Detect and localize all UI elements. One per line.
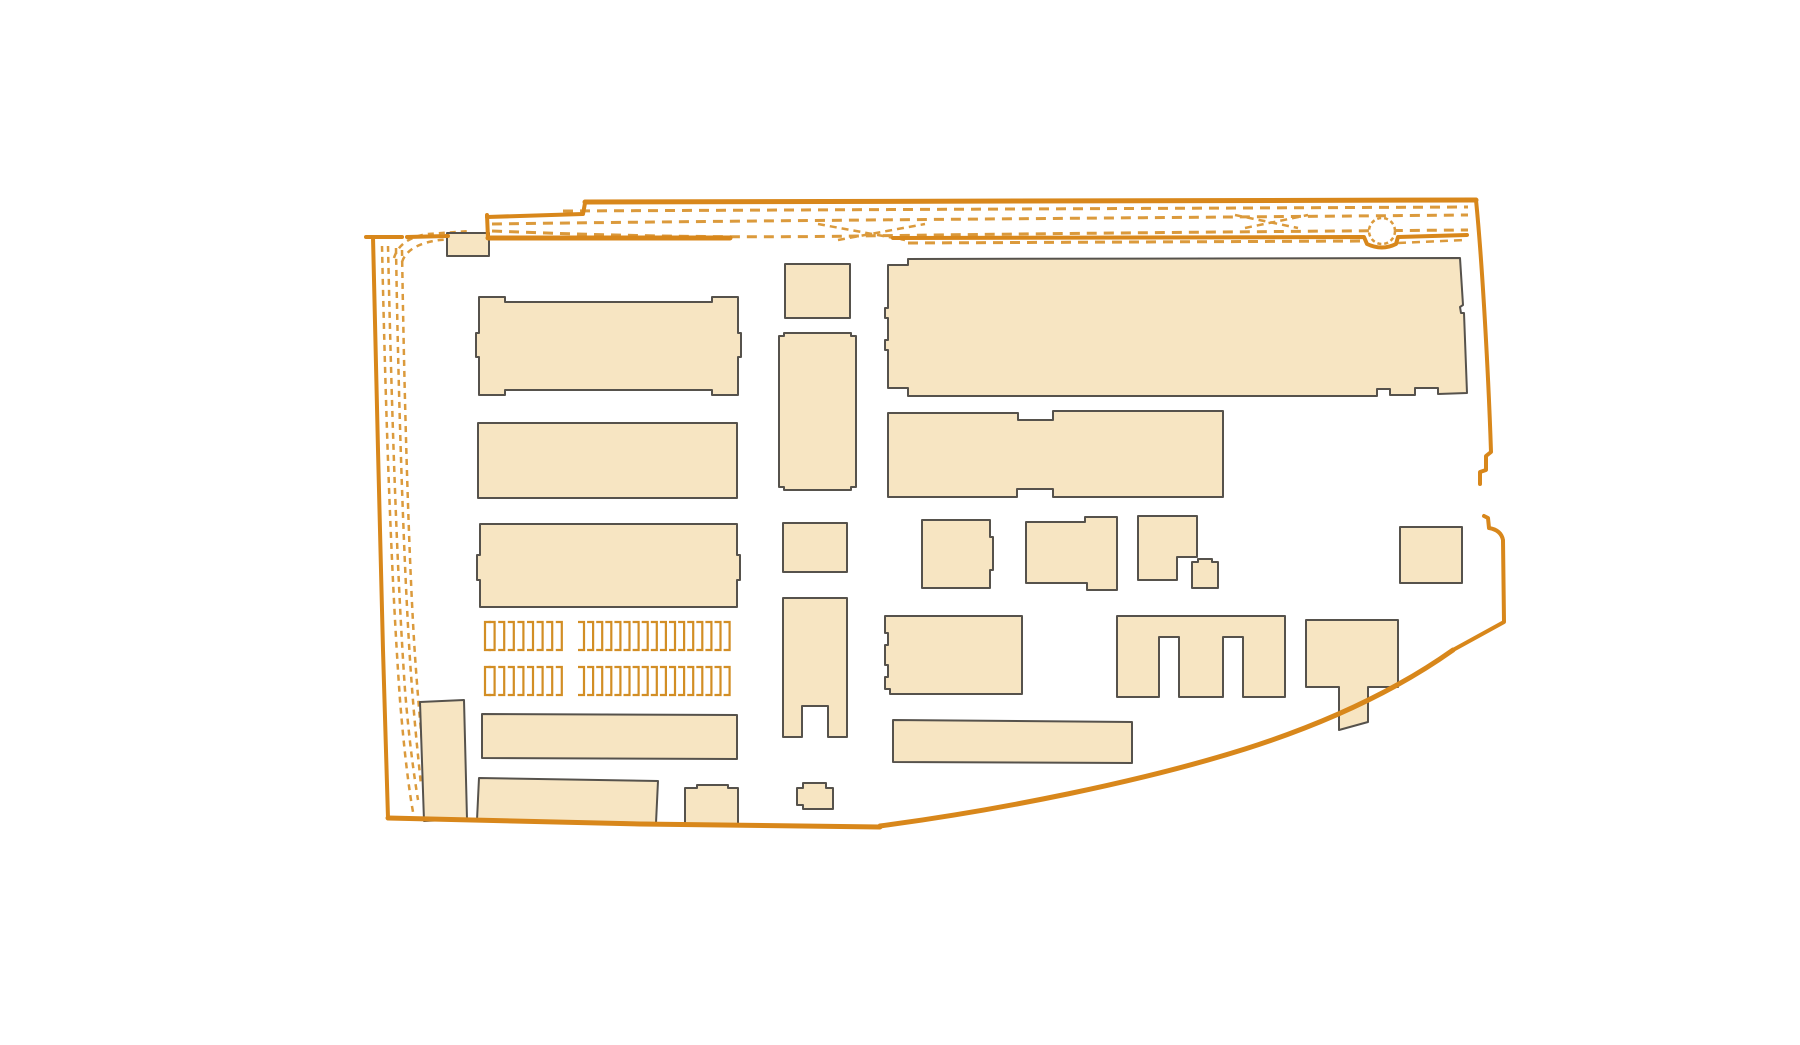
parking-stall	[660, 622, 666, 650]
parking-stall	[587, 667, 593, 695]
boundary-topleft-stub-2	[407, 236, 448, 237]
rail-track-top-track-5	[1398, 240, 1466, 243]
building-left-hall-3	[477, 524, 740, 607]
parking-stall	[587, 622, 593, 650]
parking-stall	[537, 622, 543, 650]
parking-stall	[678, 622, 684, 650]
parking-stall	[624, 667, 630, 695]
building-l-shaped-building	[1138, 516, 1197, 580]
building-left-hall-4	[482, 714, 737, 759]
parking-stall	[498, 667, 504, 695]
boundary-left-boundary	[373, 237, 388, 818]
parking-stall	[642, 622, 648, 650]
building-mid-square-bump	[922, 520, 993, 588]
parking-stall	[705, 667, 711, 695]
parking-stall	[596, 667, 602, 695]
building-mid-tall-2-notched	[783, 598, 847, 737]
parking-stall	[687, 622, 693, 650]
parking-stall	[614, 622, 620, 650]
parking-stall	[605, 622, 611, 650]
parking-stall	[596, 622, 602, 650]
parking-stall	[508, 622, 514, 650]
parking-stall	[489, 622, 495, 650]
parking-stalls-layer	[485, 622, 730, 695]
stall-row-2	[485, 667, 730, 695]
turntable-layer	[1369, 218, 1395, 244]
parking-stall	[669, 622, 675, 650]
rail-track-top-track-1	[563, 207, 1468, 211]
building-mid-tall-1	[779, 333, 856, 490]
building-far-right-square	[1400, 527, 1462, 583]
building-small-top-shed	[447, 233, 489, 256]
parking-stall	[527, 622, 533, 650]
stall-row-1	[485, 622, 730, 650]
building-left-hall-1	[476, 297, 741, 395]
parking-stall	[705, 622, 711, 650]
parking-stall	[651, 622, 657, 650]
building-t-shaped-building	[1306, 620, 1398, 730]
building-mid-small-2	[783, 523, 847, 572]
parking-stall-open	[485, 622, 491, 650]
turntable-circle	[1369, 218, 1395, 244]
parking-stall	[642, 667, 648, 695]
parking-stall	[537, 667, 543, 695]
parking-stall	[687, 667, 693, 695]
building-mid-tiny-blob	[797, 783, 833, 809]
buildings-layer	[420, 233, 1467, 826]
parking-stall	[715, 622, 721, 650]
site-plan-page	[0, 0, 1800, 1045]
parking-stall	[556, 622, 562, 650]
parking-stall	[696, 622, 702, 650]
building-tiny-square	[1192, 559, 1218, 588]
building-mid-hall-notched-left	[885, 616, 1022, 694]
parking-stall	[633, 667, 639, 695]
building-narrow-tilted-building	[420, 700, 467, 821]
parking-stall	[715, 667, 721, 695]
building-wide-hall-2	[888, 411, 1223, 497]
parking-stall	[508, 667, 514, 695]
parking-stall	[489, 667, 495, 695]
parking-stall	[678, 667, 684, 695]
parking-stall	[651, 667, 657, 695]
building-bottom-left-small	[685, 785, 738, 826]
building-e-shaped-building	[1117, 616, 1285, 697]
parking-stall	[556, 667, 562, 695]
boundary-top-boundary	[585, 200, 1476, 202]
site-plan-drawing	[0, 0, 1800, 1045]
parking-stall	[633, 622, 639, 650]
parking-stall	[669, 667, 675, 695]
parking-stall	[724, 622, 730, 650]
building-stepped-building	[1026, 517, 1117, 590]
parking-stall-open	[485, 667, 491, 695]
parking-stall	[517, 667, 523, 695]
parking-stall	[605, 667, 611, 695]
parking-stall	[578, 622, 584, 650]
parking-stall	[546, 667, 552, 695]
parking-stall	[546, 622, 552, 650]
parking-stall	[527, 667, 533, 695]
building-left-hall-2	[478, 423, 737, 498]
parking-stall	[724, 667, 730, 695]
parking-stall	[614, 667, 620, 695]
building-bottom-mid-hall	[893, 720, 1132, 763]
parking-stall	[578, 667, 584, 695]
parking-stall	[517, 622, 523, 650]
building-big-north-hall	[885, 258, 1467, 396]
parking-stall	[624, 622, 630, 650]
building-mid-small-1	[785, 264, 850, 318]
building-bottom-left-hall	[477, 778, 658, 823]
parking-stall	[660, 667, 666, 695]
boundary-right-upper-boundary	[1476, 200, 1491, 484]
boundary-connector-vertical	[487, 215, 488, 238]
rail-track-top-track-2	[492, 215, 1468, 224]
rail-track-top-track-4	[908, 241, 1366, 243]
parking-stall	[498, 622, 504, 650]
parking-stall	[696, 667, 702, 695]
